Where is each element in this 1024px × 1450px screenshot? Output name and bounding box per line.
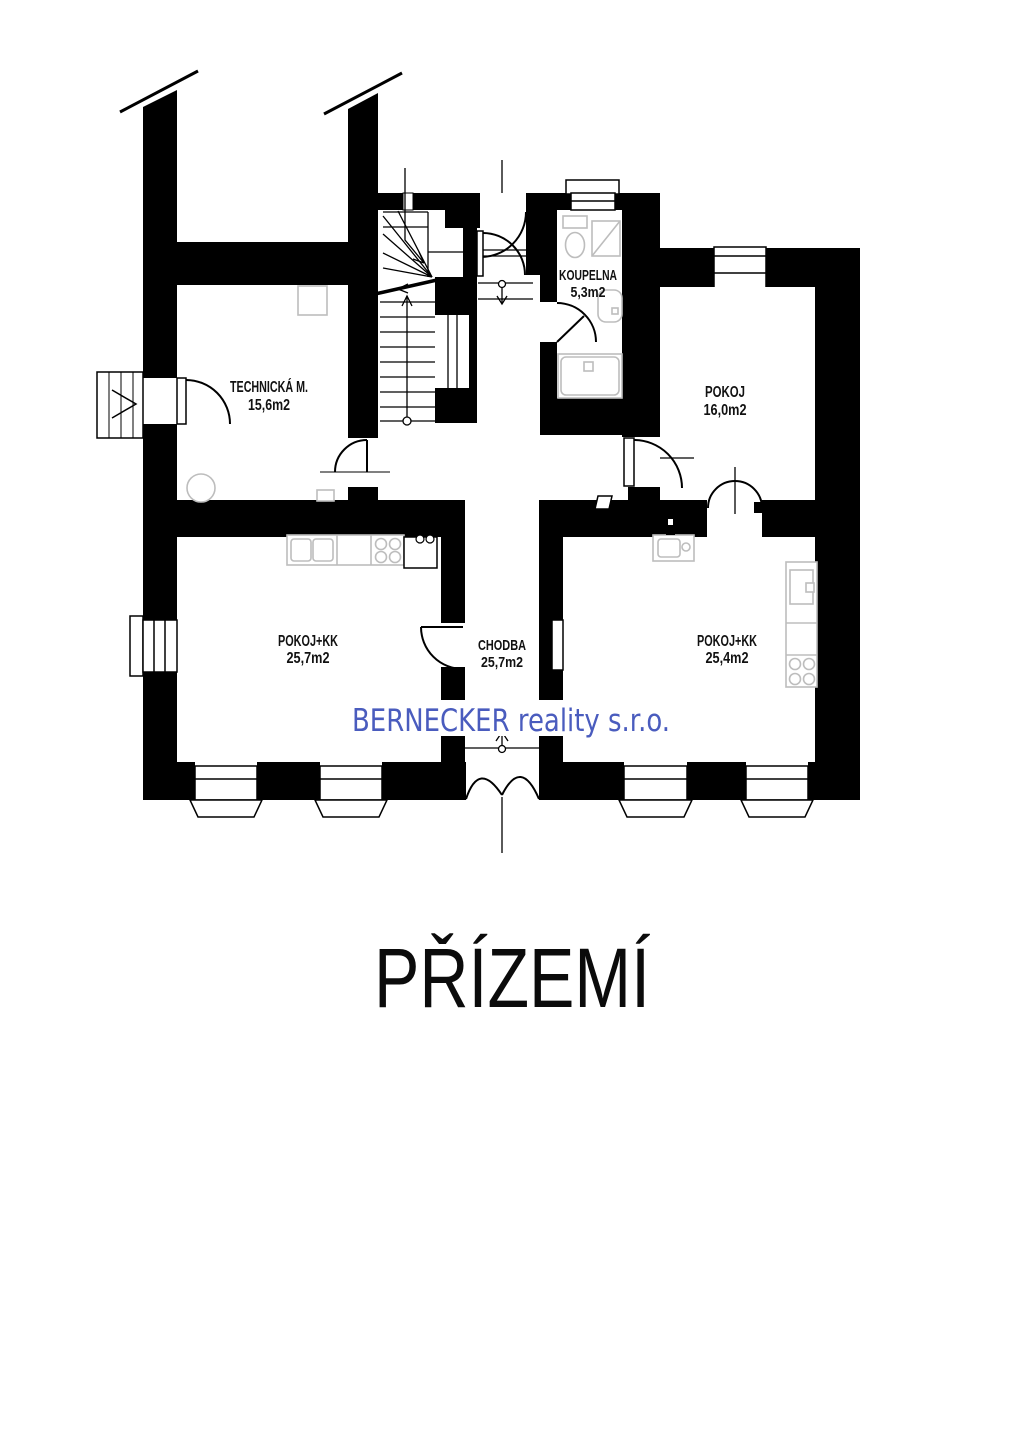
bay-window xyxy=(741,766,813,817)
room-label-chodba: CHODBA xyxy=(478,637,526,654)
room-label-technicka: TECHNICKÁ M. xyxy=(230,379,308,396)
room-area-pokoj-kk-east: 25,4m2 xyxy=(706,650,749,667)
room-area-chodba: 25,7m2 xyxy=(481,654,523,671)
page-title: PŘÍZEMÍ xyxy=(374,931,651,1025)
room-area-koupelna: 5,3m2 xyxy=(571,284,606,301)
room-chodba: CHODBA 25,7m2 xyxy=(478,637,526,671)
room-area-technicka: 15,6m2 xyxy=(248,397,290,414)
room-label-koupelna: KOUPELNA xyxy=(559,267,617,284)
room-pokoj-kk-west: POKOJ+KK 25,7m2 xyxy=(278,633,339,667)
room-pokoj-kk-east: POKOJ+KK 25,4m2 xyxy=(697,633,758,667)
bay-window xyxy=(190,766,262,817)
bay-window xyxy=(315,766,387,817)
room-area-pokoj: 16,0m2 xyxy=(704,402,747,419)
floor-plan-canvas: TECHNICKÁ M. 15,6m2 KOUPELNA 5,3m2 POKOJ… xyxy=(0,0,1024,1450)
bay-window xyxy=(619,766,692,817)
room-pokoj: POKOJ 16,0m2 xyxy=(704,384,747,419)
room-label-pokoj: POKOJ xyxy=(705,384,745,401)
watermark-text: BERNECKER reality s.r.o. xyxy=(352,703,670,739)
room-label-pokoj-kk-east: POKOJ+KK xyxy=(697,633,758,650)
watermark: BERNECKER reality s.r.o. xyxy=(348,700,680,739)
room-label-pokoj-kk-west: POKOJ+KK xyxy=(278,633,339,650)
room-area-pokoj-kk-west: 25,7m2 xyxy=(287,650,330,667)
